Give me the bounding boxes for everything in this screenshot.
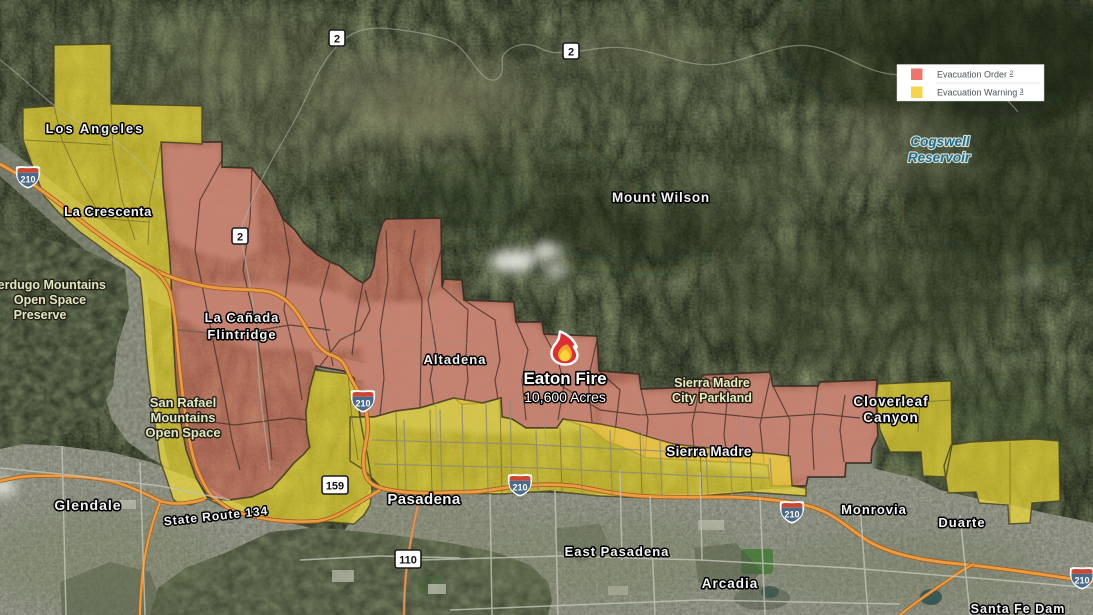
svg-text:Monrovia: Monrovia: [841, 502, 907, 517]
svg-text:10,600 Acres: 10,600 Acres: [524, 389, 606, 405]
svg-text:Arcadia: Arcadia: [702, 576, 759, 591]
svg-text:159: 159: [326, 481, 344, 493]
svg-text:La Crescenta: La Crescenta: [64, 204, 152, 219]
svg-text:2: 2: [334, 34, 340, 46]
svg-text:Mountains: Mountains: [151, 410, 216, 425]
svg-text:Verdugo Mountains: Verdugo Mountains: [0, 278, 106, 292]
svg-text:210: 210: [784, 510, 799, 520]
svg-text:Preserve: Preserve: [14, 308, 67, 322]
svg-text:Mount Wilson: Mount Wilson: [612, 190, 710, 205]
svg-text:City Parkland: City Parkland: [672, 391, 752, 405]
svg-text:Evacuation Order 2: Evacuation Order 2: [937, 70, 1014, 80]
svg-text:Open Space: Open Space: [145, 425, 220, 440]
svg-text:2: 2: [237, 232, 243, 244]
svg-text:Canyon: Canyon: [863, 410, 919, 425]
svg-text:Cogswell: Cogswell: [910, 134, 970, 149]
svg-text:Evacuation Warning 3: Evacuation Warning 3: [937, 88, 1024, 98]
svg-text:Sierra Madre: Sierra Madre: [666, 444, 752, 459]
svg-text:Los Angeles: Los Angeles: [46, 121, 145, 136]
svg-text:110: 110: [399, 555, 417, 567]
svg-text:La Cañada: La Cañada: [205, 310, 280, 325]
svg-text:Open Space: Open Space: [14, 293, 86, 307]
svg-text:210: 210: [512, 483, 527, 493]
svg-text:East Pasadena: East Pasadena: [565, 544, 670, 559]
svg-text:San Rafael: San Rafael: [150, 395, 216, 410]
svg-text:Reservoir: Reservoir: [908, 150, 971, 165]
svg-text:Glendale: Glendale: [54, 497, 121, 513]
svg-text:Eaton Fire: Eaton Fire: [523, 369, 606, 388]
svg-text:Pasadena: Pasadena: [387, 491, 460, 508]
svg-text:Santa Fe Dam: Santa Fe Dam: [971, 602, 1066, 615]
svg-text:2: 2: [568, 47, 574, 59]
svg-text:Cloverleaf: Cloverleaf: [853, 394, 928, 409]
svg-text:210: 210: [1074, 576, 1089, 586]
svg-text:Altadena: Altadena: [424, 352, 487, 367]
svg-text:Duarte: Duarte: [938, 515, 985, 530]
svg-text:Sierra Madre: Sierra Madre: [674, 376, 750, 390]
svg-text:Flintridge: Flintridge: [207, 327, 276, 342]
svg-text:210: 210: [20, 175, 35, 185]
svg-text:210: 210: [355, 399, 370, 409]
